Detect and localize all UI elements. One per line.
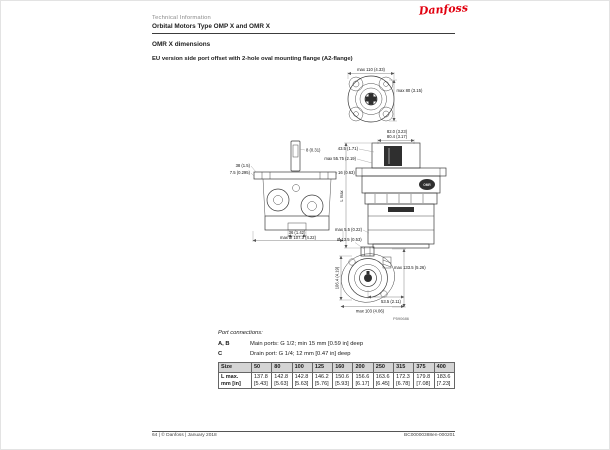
table-cell-lmax-200: 156.6 [6.17] bbox=[353, 373, 373, 389]
table-header-size-125: 125 bbox=[312, 363, 332, 373]
table-cell-lmax-315: 172.3 [6.78] bbox=[394, 373, 414, 389]
port-connections-title: Port connections: bbox=[218, 330, 263, 336]
port-connection-row: C Drain port: G 1/4; 12 mm [0.47 in] dee… bbox=[218, 351, 351, 357]
table-row-label-lmax: L max. mm [in] bbox=[219, 373, 252, 389]
top-view-dim-port-offset: 8 (0.31) bbox=[306, 148, 321, 153]
flange-dim-width: max 110 (4.33) bbox=[357, 67, 385, 72]
table-cell-lmax-160: 150.6 [5.93] bbox=[333, 373, 353, 389]
table-header-size-400: 400 bbox=[434, 363, 454, 373]
table-header-size-200: 200 bbox=[353, 363, 373, 373]
drawing-reference-number: P590686 bbox=[393, 316, 410, 321]
table-header-size: Size bbox=[219, 363, 252, 373]
table-header-size-315: 315 bbox=[394, 363, 414, 373]
side-view-drawing: 82.0 (3.23) 80.4 (3.17) 43.5 (1.71) max … bbox=[324, 129, 446, 248]
side-view-dim-top-2: 80.4 (3.17) bbox=[387, 134, 408, 139]
table-header-size-375: 375 bbox=[414, 363, 434, 373]
table-cell-lmax-250: 163.6 [6.45] bbox=[373, 373, 393, 389]
l-max-table: Size5080100125160200250315375400 L max. … bbox=[218, 362, 455, 389]
footer-page-info: 64 | © Danfoss | January 2018 bbox=[152, 433, 217, 438]
side-view-dim-left-2: max 55.75 (2.19) bbox=[324, 156, 356, 161]
side-view-dim-bottom: max 5.5 (0.22) bbox=[335, 227, 363, 232]
table-header-size-160: 160 bbox=[333, 363, 353, 373]
table-cell-lmax-125: 146.2 [5.76] bbox=[312, 373, 332, 389]
top-view-dim-left-2: 7.5 (0.295) bbox=[230, 170, 251, 175]
document-page: Technical Information Orbital Motors Typ… bbox=[0, 0, 610, 450]
end-view-dim-right: max 133.5 (5.26) bbox=[394, 265, 426, 270]
end-view-dim-left: 106.4 (4.19) bbox=[335, 266, 340, 289]
table-header-size-100: 100 bbox=[292, 363, 312, 373]
footer-rule bbox=[152, 431, 455, 432]
end-view-dim-bottom-right: 53.5 (2.11) bbox=[381, 299, 402, 304]
table-header-size-250: 250 bbox=[373, 363, 393, 373]
table-header-row: Size5080100125160200250315375400 bbox=[219, 363, 455, 373]
table-cell-lmax-375: 179.8 [7.08] bbox=[414, 373, 434, 389]
table-cell-lmax-100: 142.8 [5.63] bbox=[292, 373, 312, 389]
side-view-dim-left-1: 43.5 (1.71) bbox=[338, 146, 359, 151]
footer-document-number: BC00000388en-000201 bbox=[355, 433, 455, 438]
table-data-row: L max. mm [in]137.8 [5.43]142.8 [5.63]14… bbox=[219, 373, 455, 389]
flange-front-view-drawing: max 110 (4.33) max 80 (3.15) bbox=[348, 67, 423, 122]
side-view-nameplate: OMR bbox=[423, 183, 431, 187]
table-cell-lmax-400: 183.6 [7.23] bbox=[434, 373, 454, 389]
port-connection-row: A, B Main ports: G 1/2; min 15 mm [0.59 … bbox=[218, 341, 363, 347]
end-view-dim-top: Ø 13.5 (0.53) bbox=[337, 237, 362, 242]
port-key-ab: A, B bbox=[218, 341, 250, 347]
flange-dim-height: max 80 (3.15) bbox=[397, 88, 423, 93]
table-header-size-80: 80 bbox=[272, 363, 292, 373]
top-view-dim-left-1: 38 (1.5) bbox=[236, 163, 251, 168]
port-desc-main: Main ports: G 1/2; min 15 mm [0.59 in] d… bbox=[250, 341, 363, 347]
top-view-dim-bottom-2: max Ø 107.3 (4.22) bbox=[280, 235, 317, 240]
side-view-dim-lmax: L max bbox=[339, 189, 344, 201]
table-header-size-50: 50 bbox=[252, 363, 272, 373]
port-key-c: C bbox=[218, 351, 250, 357]
top-view-dim-right-2: 16 (0.63) bbox=[338, 170, 355, 175]
port-desc-drain: Drain port: G 1/4; 12 mm [0.47 in] deep bbox=[250, 351, 351, 357]
table-cell-lmax-50: 137.8 [5.43] bbox=[252, 373, 272, 389]
end-view-drawing: Ø 13.5 (0.53) 106.4 (4.19) bbox=[335, 237, 427, 321]
end-view-dim-bottom: max 103 (4.06) bbox=[356, 309, 385, 314]
table-cell-lmax-80: 142.8 [5.63] bbox=[272, 373, 292, 389]
